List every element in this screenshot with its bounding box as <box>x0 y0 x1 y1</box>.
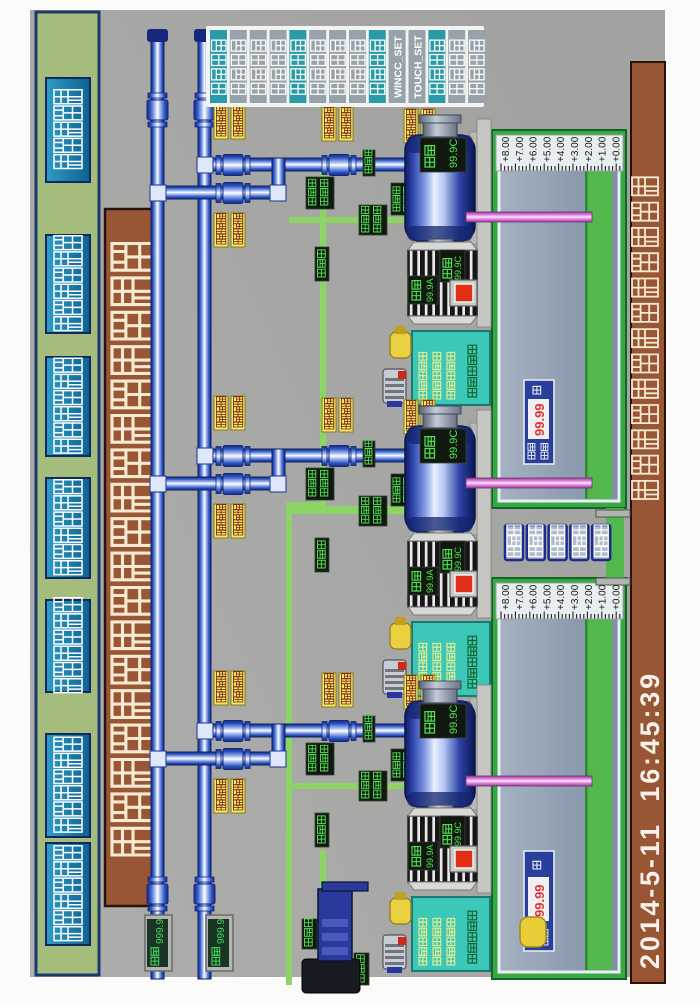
svg-text:99.99: 99.99 <box>532 403 547 436</box>
svg-text:99.9C: 99.9C <box>453 255 463 280</box>
svg-text:+0.00: +0.00 <box>611 136 622 162</box>
svg-text:999.9: 999.9 <box>155 919 166 944</box>
svg-text:+5.00: +5.00 <box>542 136 553 162</box>
svg-text:+3.00: +3.00 <box>570 136 581 162</box>
svg-text:+4.00: +4.00 <box>556 584 567 610</box>
svg-text:+5.00: +5.00 <box>542 584 553 610</box>
svg-text:+1.00: +1.00 <box>598 136 609 162</box>
svg-text:99.9C: 99.9C <box>453 821 463 846</box>
svg-text:WINCC_SET: WINCC_SET <box>393 35 405 97</box>
svg-text:+7.00: +7.00 <box>515 136 526 162</box>
svg-text:99.9A: 99.9A <box>425 844 435 868</box>
svg-text:2014-5-11 16:45:39: 2014-5-11 16:45:39 <box>635 671 665 969</box>
svg-text:+7.00: +7.00 <box>515 584 526 610</box>
svg-text:999.9: 999.9 <box>216 919 227 944</box>
svg-text:99.9C: 99.9C <box>448 139 460 168</box>
svg-text:+2.00: +2.00 <box>584 584 595 610</box>
svg-text:+1.00: +1.00 <box>598 584 609 610</box>
svg-text:+0.00: +0.00 <box>611 584 622 610</box>
svg-text:+4.00: +4.00 <box>556 136 567 162</box>
svg-text:+6.00: +6.00 <box>529 584 540 610</box>
svg-text:99.9C: 99.9C <box>448 430 460 459</box>
svg-text:+3.00: +3.00 <box>570 584 581 610</box>
svg-text:+8.00: +8.00 <box>501 136 512 162</box>
svg-text:+2.00: +2.00 <box>584 136 595 162</box>
svg-text:+8.00: +8.00 <box>501 584 512 610</box>
svg-text:99.9C: 99.9C <box>448 705 460 734</box>
svg-text:TOUCH_SET: TOUCH_SET <box>413 35 425 99</box>
svg-text:99.99: 99.99 <box>532 884 547 917</box>
svg-text:+6.00: +6.00 <box>529 136 540 162</box>
svg-text:99.9A: 99.9A <box>425 569 435 593</box>
svg-text:99.9A: 99.9A <box>425 278 435 302</box>
svg-text:99.9C: 99.9C <box>453 546 463 571</box>
